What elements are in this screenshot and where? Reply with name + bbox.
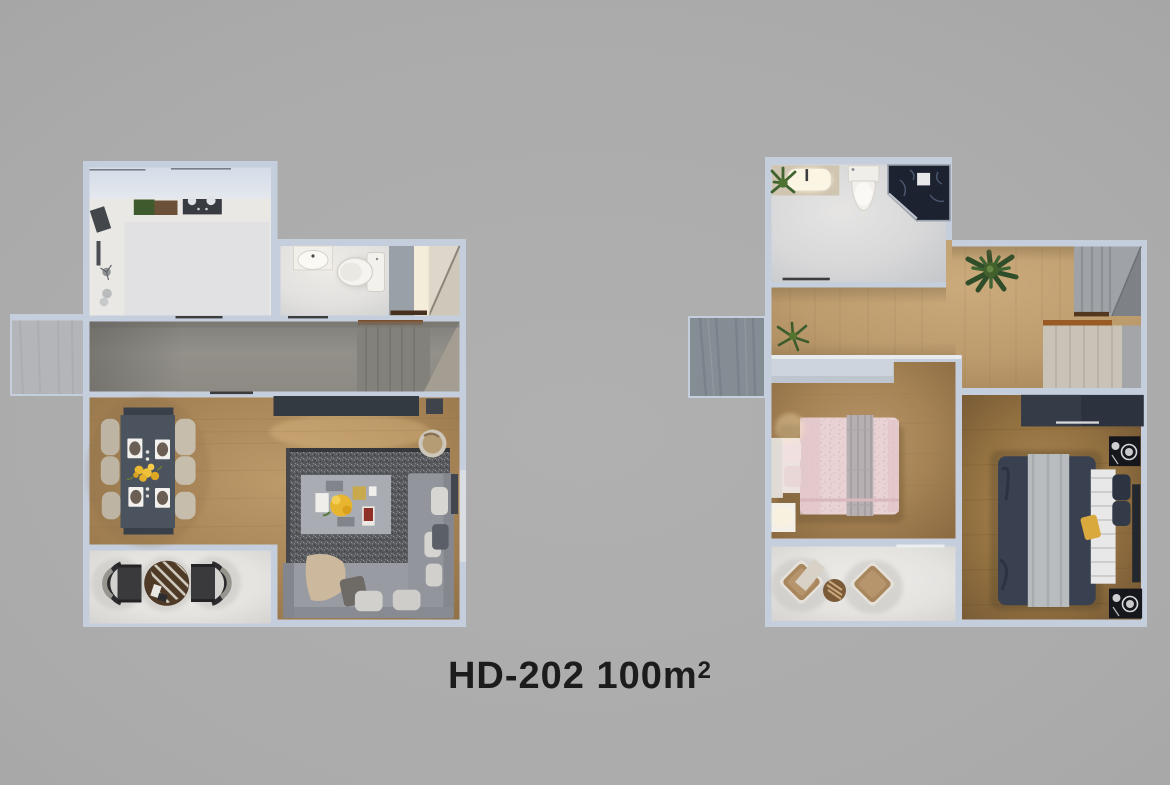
svg-text:HD-202 100m2: HD-202 100m2 xyxy=(448,655,712,697)
